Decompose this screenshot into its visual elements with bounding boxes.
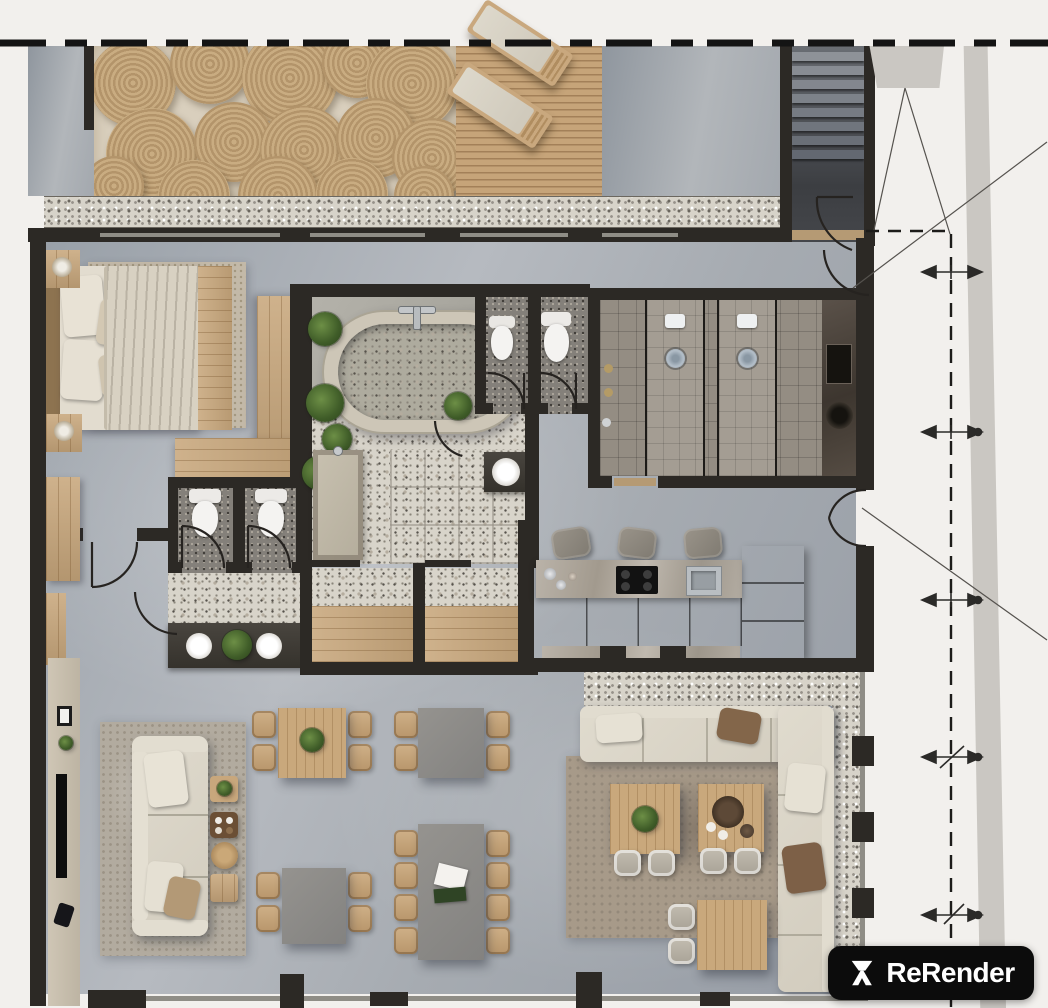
south-mullion <box>370 992 408 1006</box>
stair-right-wall <box>864 46 875 246</box>
lounge-chair <box>614 850 641 876</box>
dining-chair <box>252 711 276 738</box>
lounge-chair <box>668 904 695 930</box>
staircase <box>792 46 864 246</box>
lounge-table-wood <box>698 784 764 852</box>
shower-control-panel <box>737 314 757 328</box>
south-pillar <box>280 974 304 1008</box>
lounge-chair <box>648 850 675 876</box>
dining-chair <box>394 894 418 921</box>
sofa-pillow <box>595 712 643 743</box>
washbasin <box>492 458 520 486</box>
wc-lobby-floor <box>168 573 306 623</box>
vanity-marble-zone <box>822 300 856 476</box>
dining-chair <box>394 711 418 738</box>
east-wall-mid <box>856 546 874 672</box>
rerender-watermark: ReRender <box>828 946 1034 1000</box>
shower-fixture <box>604 388 613 397</box>
dining-chair <box>486 711 510 738</box>
side-stool <box>210 874 238 902</box>
table-book <box>433 887 466 904</box>
shower-threshold <box>614 478 656 486</box>
dining-chair <box>348 905 372 932</box>
bench-faucet <box>333 446 343 456</box>
bay-south-wall <box>300 662 538 675</box>
sofa-seam <box>770 718 772 762</box>
sofa-seam <box>706 718 708 762</box>
kitchen-south-wall <box>518 658 858 672</box>
south-wall-block <box>88 990 146 1008</box>
dining-chair <box>394 744 418 771</box>
south-glazing <box>88 996 868 1001</box>
table-plant <box>300 728 324 752</box>
hob-burner <box>643 582 652 591</box>
bed-headboard <box>46 264 60 432</box>
stair-tread <box>792 108 864 117</box>
wc-wall <box>475 403 493 414</box>
stair-tread <box>792 136 864 145</box>
bay-wall <box>413 563 425 675</box>
stair-tread <box>792 122 864 131</box>
toilet-bowl <box>544 324 569 362</box>
bay-wood-floor <box>312 606 413 662</box>
bed-blanket <box>104 266 201 430</box>
dining-table-wood <box>278 708 346 778</box>
wc-wall <box>521 403 548 414</box>
toilet-bowl <box>192 501 218 537</box>
bar-stool <box>683 526 723 559</box>
stair-tread <box>792 80 864 89</box>
stair-left-wall <box>780 46 792 246</box>
wc-wall <box>168 477 178 573</box>
tray-cup <box>215 817 222 824</box>
dimension-arrow <box>922 593 982 607</box>
reference-lines <box>853 88 1047 640</box>
dining-table-gray <box>282 868 346 944</box>
side-tray-table <box>210 812 238 838</box>
dining-chair <box>348 744 372 771</box>
bay-wood-floor <box>425 606 525 662</box>
shower-wall <box>658 476 868 488</box>
shower-glass <box>717 300 719 476</box>
tv-screen <box>56 774 67 878</box>
north-glazing <box>460 233 568 237</box>
sofa-pillow-brown <box>781 841 827 894</box>
terrace-round-mat-rug <box>94 46 456 196</box>
console-frame-decor <box>57 706 72 726</box>
shower-fixture <box>604 364 613 373</box>
bay-lintel <box>312 560 360 567</box>
vanity-basin <box>186 633 212 659</box>
bar-stool <box>616 526 657 560</box>
shower-glass <box>645 300 647 476</box>
induction-hob <box>616 566 658 594</box>
kitchen-base-cabinets <box>536 598 742 646</box>
tea-cup <box>706 822 716 832</box>
dining-chair <box>394 862 418 889</box>
vanity-plant <box>222 630 252 660</box>
lounge-chair <box>734 848 761 874</box>
lounge-chair <box>668 938 695 964</box>
sofa-armrest <box>132 920 208 936</box>
shower-bench <box>313 450 363 560</box>
bay-floor <box>312 568 413 608</box>
kitchen-back-wall <box>518 520 534 670</box>
rerender-logo-icon <box>847 958 877 988</box>
wc-wall <box>233 477 245 573</box>
east-wall-upper <box>856 238 874 490</box>
lounge-table-wood <box>697 900 767 970</box>
rerender-label: ReRender <box>886 957 1014 989</box>
hob-burner <box>621 582 630 591</box>
bay-floor <box>425 568 525 608</box>
stair-tread <box>792 66 864 75</box>
dimension-arrow <box>922 904 982 924</box>
tray-cup <box>226 827 233 834</box>
counter-bottles <box>544 568 556 580</box>
tall-cabinets <box>742 546 804 658</box>
table-lamp <box>52 257 72 277</box>
counter-bottles <box>556 580 566 590</box>
wc-wall <box>226 562 252 573</box>
dining-chair <box>486 894 510 921</box>
shower-control-panel <box>665 314 685 328</box>
shower-mirror <box>826 344 852 384</box>
dining-chair <box>394 830 418 857</box>
stair-tread <box>792 94 864 103</box>
side-stool <box>210 776 238 802</box>
bed-side-platform <box>198 266 232 430</box>
stool-plant <box>217 781 232 796</box>
wc-wall <box>528 297 541 414</box>
tea-cup <box>718 830 728 840</box>
counter-bottles <box>568 572 577 581</box>
hob-burner <box>621 570 630 579</box>
table-lamp <box>54 421 74 441</box>
site-gray-strip <box>960 46 1006 1008</box>
lounge-chair <box>700 848 727 874</box>
dining-chair <box>348 872 372 899</box>
north-glazing <box>100 233 280 237</box>
shower-wall <box>588 288 600 488</box>
dining-chair <box>256 872 280 899</box>
bathroom-plant <box>444 392 472 420</box>
console-plant <box>59 736 73 750</box>
terrace-gravel-strip <box>44 196 780 228</box>
site-gray-quad <box>868 46 944 88</box>
tray-cup <box>226 817 233 824</box>
hall-cabinet <box>46 593 66 665</box>
dining-chair <box>348 711 372 738</box>
terrace-concrete <box>602 46 780 196</box>
rain-shower-head <box>666 349 685 368</box>
bathroom-plant <box>308 312 342 346</box>
sink-basin <box>691 571 716 590</box>
dining-chair <box>256 905 280 932</box>
tray-cup <box>215 827 222 834</box>
west-wall <box>30 228 46 1006</box>
stair-tread <box>792 52 864 61</box>
shower-wall <box>588 476 612 488</box>
bay-wall <box>300 560 312 675</box>
sofa-armrest <box>132 736 208 752</box>
jute-mat <box>170 46 250 104</box>
north-glazing <box>310 233 425 237</box>
dining-table-gray <box>418 708 484 778</box>
north-glazing <box>602 233 678 237</box>
dining-chair <box>486 830 510 857</box>
dimension-arrow <box>922 746 982 768</box>
dining-chair <box>394 927 418 954</box>
toilet-bowl <box>258 501 284 537</box>
stair-threshold <box>792 230 864 240</box>
wc-wall <box>475 297 486 414</box>
bidet-bowl <box>491 326 513 360</box>
east-mullion <box>852 812 874 842</box>
gravel-band-top <box>584 672 858 706</box>
floor-plan-render: ReRender <box>0 0 1048 1008</box>
sofa-seam <box>642 718 644 762</box>
dining-chair <box>486 744 510 771</box>
hall-sideboard <box>46 477 80 581</box>
vanity-basin <box>256 633 282 659</box>
dining-chair <box>486 862 510 889</box>
shower-glass <box>703 300 705 476</box>
bathroom-wall <box>300 284 590 297</box>
shower-wall <box>588 288 868 300</box>
south-mullion <box>700 992 730 1006</box>
bathroom-plant <box>306 384 344 422</box>
sofa-seam <box>148 814 208 816</box>
dining-chair <box>252 744 276 771</box>
shower-glass <box>775 300 777 476</box>
kitchen-sink <box>686 566 722 596</box>
dining-chair <box>486 927 510 954</box>
hob-burner <box>643 570 652 579</box>
tea-pot <box>740 824 754 838</box>
bar-stool <box>550 525 592 561</box>
sofa-pillow <box>784 762 827 814</box>
tea-tray <box>712 796 744 828</box>
table-plant <box>632 806 658 832</box>
east-mullion <box>852 736 874 766</box>
sofa-seam <box>778 934 822 936</box>
stair-tread <box>792 150 864 159</box>
bathtub-faucet-spout <box>413 306 421 330</box>
shower-fixture <box>602 418 611 427</box>
south-pillar <box>576 972 602 1008</box>
rain-shower-head <box>738 349 757 368</box>
setback-dashed-lines <box>866 231 951 1008</box>
round-side-table <box>211 842 238 869</box>
dining-table-long <box>418 824 484 960</box>
bay-lintel <box>425 560 471 567</box>
wc-wall <box>168 562 182 573</box>
round-basin-dark <box>826 402 853 429</box>
east-mullion <box>852 888 874 918</box>
lounge-table-wood <box>610 784 680 854</box>
sofa-pillow <box>143 750 189 808</box>
